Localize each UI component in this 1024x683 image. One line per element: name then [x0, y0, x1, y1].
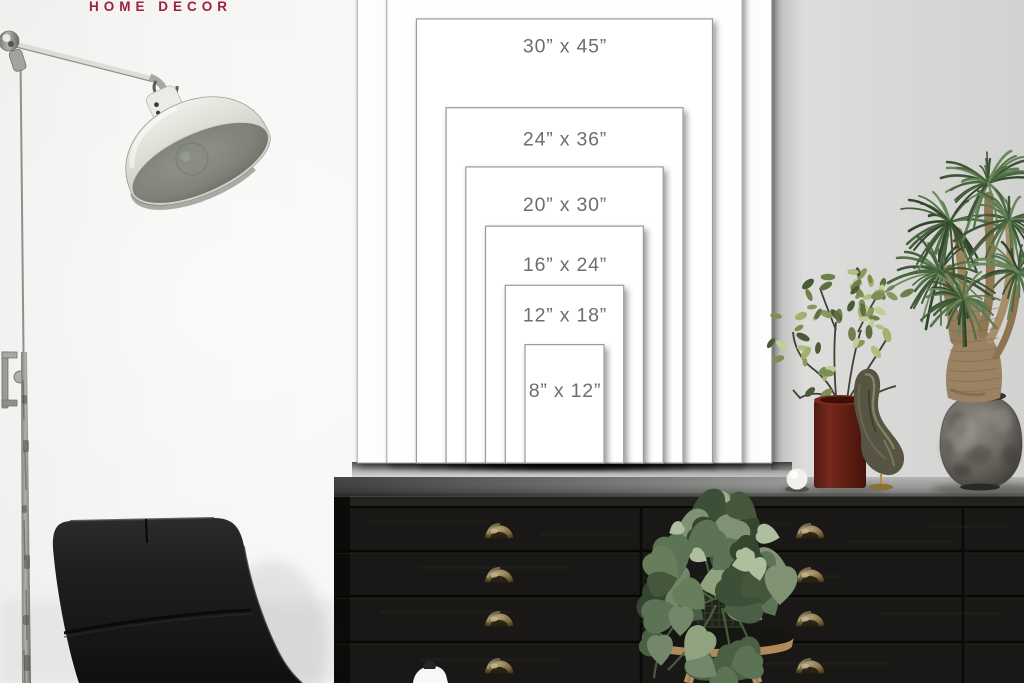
svg-text:30” x 45”: 30” x 45” [523, 36, 607, 58]
svg-text:24” x 36”: 24” x 36” [523, 129, 607, 151]
svg-text:HOME DECOR: HOME DECOR [89, 0, 232, 14]
svg-text:20” x 30”: 20” x 30” [523, 194, 607, 216]
svg-text:12” x 18”: 12” x 18” [523, 305, 607, 327]
svg-text:8” x 12”: 8” x 12” [529, 380, 602, 402]
svg-text:16” x 24”: 16” x 24” [523, 254, 607, 276]
